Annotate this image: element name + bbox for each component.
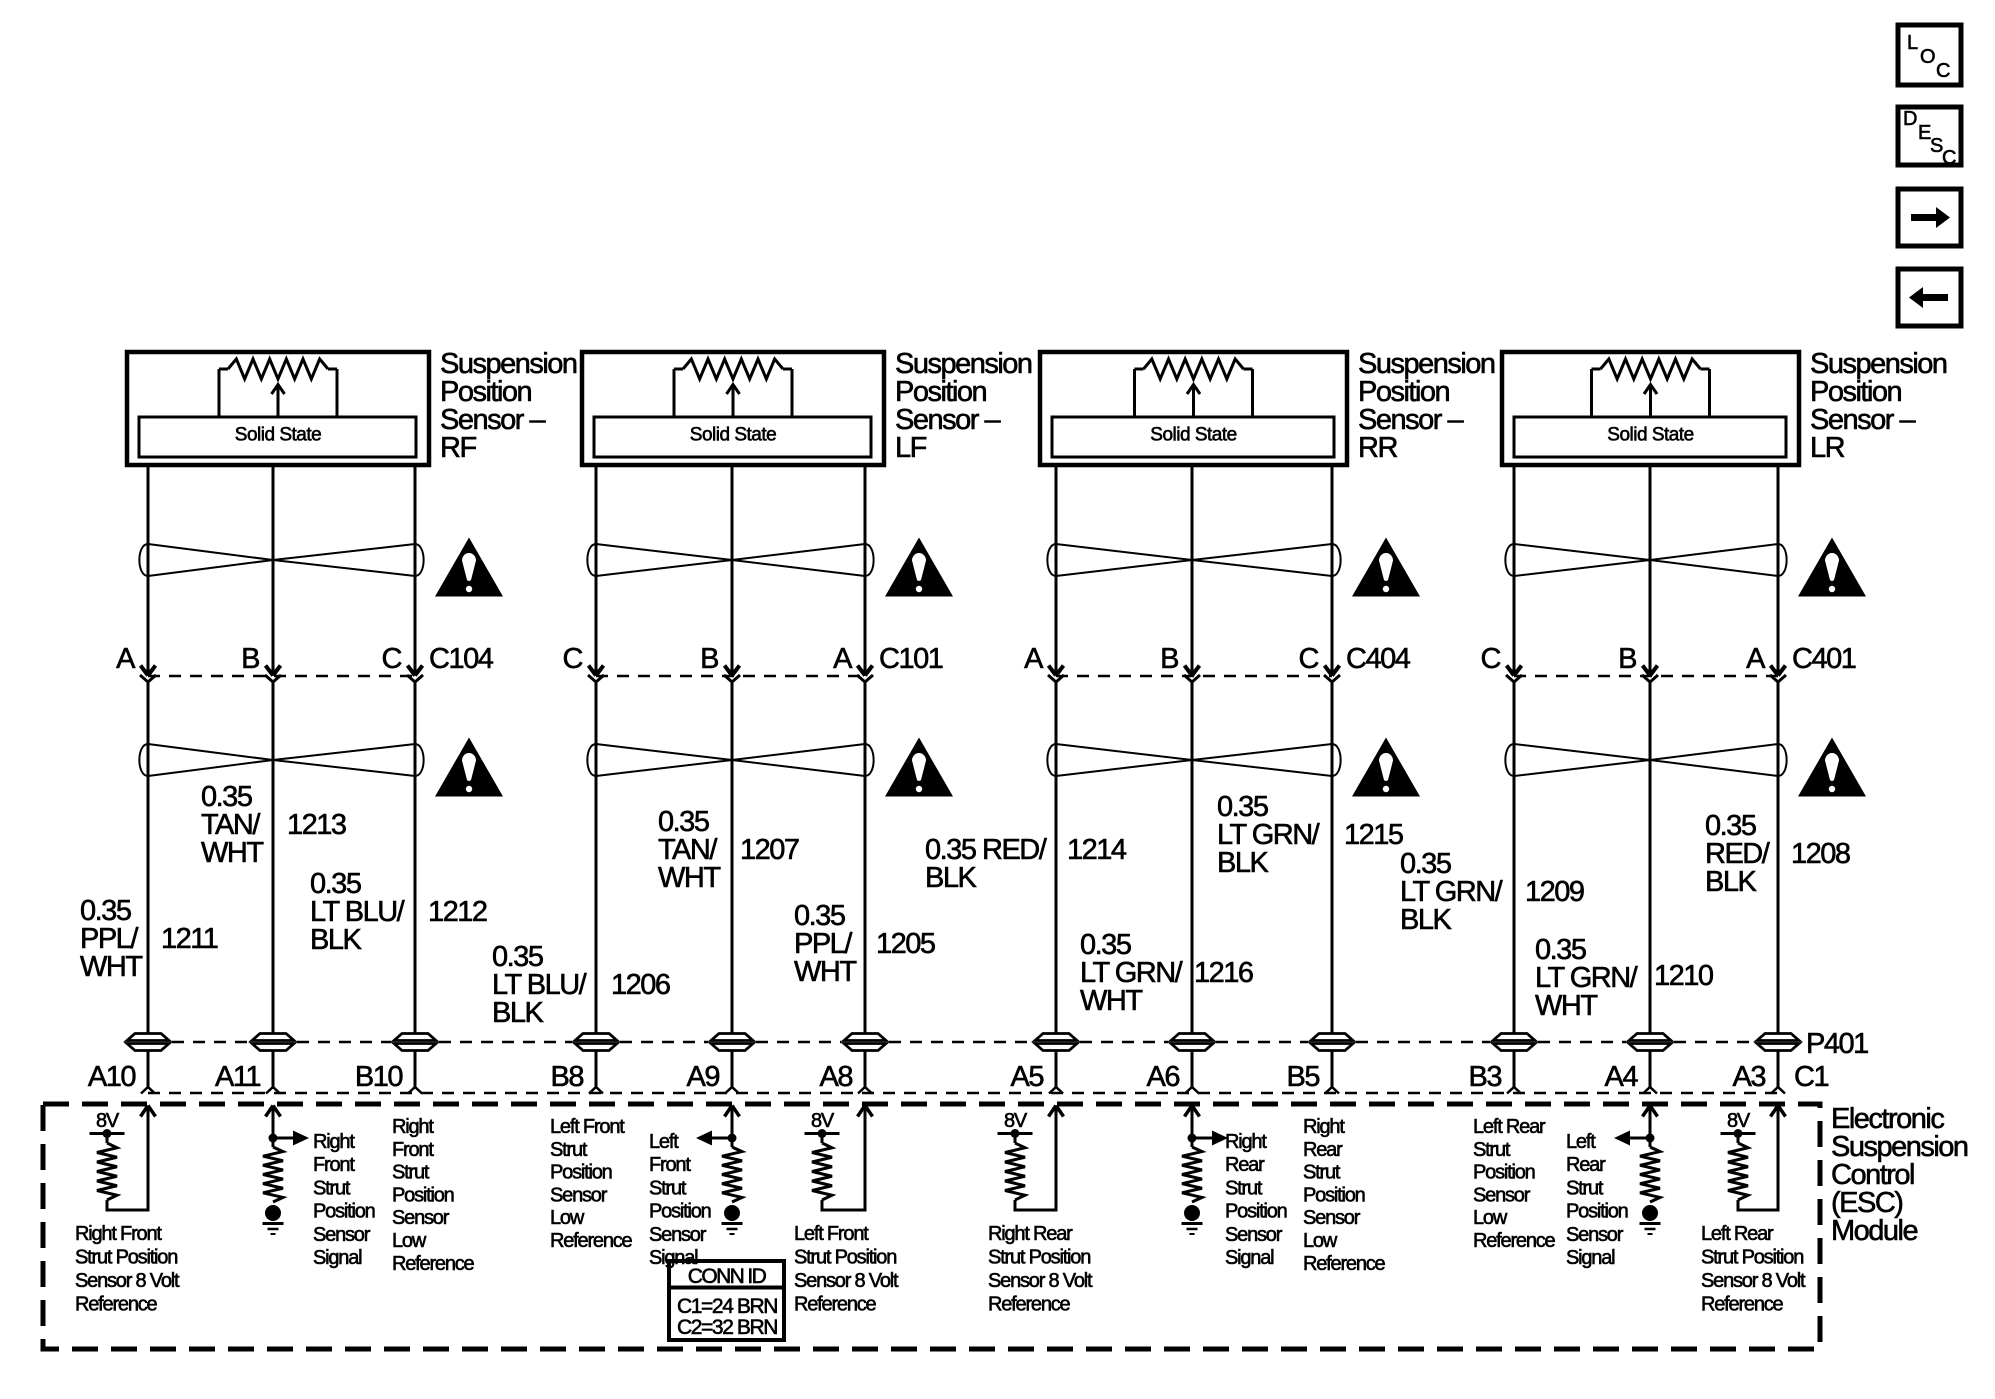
svg-text:Low: Low xyxy=(1473,1207,1508,1229)
svg-text:8V: 8V xyxy=(811,1110,835,1132)
svg-text:1212: 1212 xyxy=(428,896,487,928)
svg-text:BLK: BLK xyxy=(310,924,362,956)
svg-text:A5: A5 xyxy=(1011,1061,1044,1093)
svg-text:Sensor 8 Volt: Sensor 8 Volt xyxy=(1701,1270,1806,1292)
svg-text:O: O xyxy=(1920,46,1935,68)
svg-text:C101: C101 xyxy=(879,643,943,675)
svg-text:Position: Position xyxy=(1303,1184,1365,1206)
svg-text:WHT: WHT xyxy=(80,951,143,983)
svg-text:Sensor: Sensor xyxy=(313,1224,371,1246)
svg-text:B8: B8 xyxy=(551,1061,584,1093)
svg-text:Right: Right xyxy=(1225,1131,1267,1153)
svg-text:Module: Module xyxy=(1831,1215,1917,1247)
svg-text:1208: 1208 xyxy=(1791,838,1850,870)
svg-text:A6: A6 xyxy=(1147,1061,1180,1093)
svg-text:1209: 1209 xyxy=(1525,876,1584,908)
svg-text:BLK: BLK xyxy=(492,997,544,1029)
svg-text:WHT: WHT xyxy=(1080,985,1143,1017)
svg-text:Sensor: Sensor xyxy=(1303,1207,1361,1229)
svg-text:L: L xyxy=(1907,32,1918,54)
svg-text:Strut: Strut xyxy=(1473,1139,1511,1161)
svg-text:Strut: Strut xyxy=(392,1162,430,1184)
svg-text:Low: Low xyxy=(392,1230,427,1252)
svg-text:C: C xyxy=(1299,643,1319,675)
svg-text:Front: Front xyxy=(313,1154,355,1176)
svg-text:Position: Position xyxy=(313,1201,375,1223)
svg-text:P401: P401 xyxy=(1806,1028,1868,1060)
svg-text:LF: LF xyxy=(895,432,927,464)
svg-text:BLK: BLK xyxy=(925,862,977,894)
svg-text:Signal: Signal xyxy=(1566,1247,1615,1269)
svg-text:WHT: WHT xyxy=(1535,990,1598,1022)
svg-text:1214: 1214 xyxy=(1067,834,1127,866)
svg-text:C: C xyxy=(1481,643,1501,675)
svg-text:Solid State: Solid State xyxy=(235,425,321,446)
svg-text:LR: LR xyxy=(1810,432,1845,464)
svg-text:Low: Low xyxy=(1303,1230,1338,1252)
svg-text:Left Rear: Left Rear xyxy=(1701,1223,1774,1245)
svg-text:RF: RF xyxy=(440,432,476,464)
svg-text:Strut Position: Strut Position xyxy=(75,1247,177,1269)
svg-text:1213: 1213 xyxy=(287,809,346,841)
svg-text:C: C xyxy=(382,643,402,675)
svg-text:C2=32 BRN: C2=32 BRN xyxy=(677,1316,777,1339)
svg-text:8V: 8V xyxy=(1727,1110,1751,1132)
svg-text:Left: Left xyxy=(1566,1131,1596,1153)
svg-text:Right Front: Right Front xyxy=(75,1223,162,1245)
svg-text:1207: 1207 xyxy=(740,834,799,866)
svg-text:Left: Left xyxy=(649,1131,679,1153)
svg-text:Strut Position: Strut Position xyxy=(1701,1247,1803,1269)
svg-text:Solid State: Solid State xyxy=(1150,425,1236,446)
svg-text:Sensor: Sensor xyxy=(1566,1224,1624,1246)
svg-text:BLK: BLK xyxy=(1705,866,1757,898)
svg-text:RR: RR xyxy=(1358,432,1397,464)
svg-text:Low: Low xyxy=(550,1207,585,1229)
svg-text:Sensor 8 Volt: Sensor 8 Volt xyxy=(988,1270,1093,1292)
svg-text:Right: Right xyxy=(1303,1116,1345,1138)
svg-text:C: C xyxy=(1936,60,1950,82)
svg-text:Sensor: Sensor xyxy=(649,1224,707,1246)
svg-text:Position: Position xyxy=(392,1184,454,1206)
svg-text:A: A xyxy=(116,643,136,675)
svg-text:Front: Front xyxy=(649,1154,691,1176)
svg-text:1210: 1210 xyxy=(1654,960,1713,992)
svg-text:A11: A11 xyxy=(215,1061,260,1093)
svg-text:1206: 1206 xyxy=(611,969,670,1001)
svg-text:C: C xyxy=(563,643,583,675)
svg-text:Left Rear: Left Rear xyxy=(1473,1116,1546,1138)
svg-text:1211: 1211 xyxy=(161,923,218,955)
svg-text:Strut: Strut xyxy=(1225,1177,1263,1199)
svg-text:Position: Position xyxy=(1473,1162,1535,1184)
svg-text:Strut Position: Strut Position xyxy=(794,1247,896,1269)
svg-text:Reference: Reference xyxy=(392,1253,475,1275)
svg-text:C401: C401 xyxy=(1792,643,1856,675)
svg-text:A: A xyxy=(1024,643,1044,675)
svg-text:Sensor: Sensor xyxy=(1225,1224,1283,1246)
svg-text:Strut: Strut xyxy=(313,1177,351,1199)
svg-text:Solid State: Solid State xyxy=(690,425,776,446)
svg-text:Signal: Signal xyxy=(313,1247,362,1269)
svg-text:Position: Position xyxy=(649,1201,711,1223)
svg-text:Rear: Rear xyxy=(1225,1154,1265,1176)
svg-text:A9: A9 xyxy=(687,1061,720,1093)
svg-text:Rear: Rear xyxy=(1566,1154,1606,1176)
svg-text:Strut: Strut xyxy=(550,1139,588,1161)
svg-text:B: B xyxy=(700,643,718,675)
svg-text:Strut: Strut xyxy=(649,1177,687,1199)
svg-text:1216: 1216 xyxy=(1194,957,1253,989)
svg-text:C404: C404 xyxy=(1346,643,1411,675)
svg-text:Sensor 8 Volt: Sensor 8 Volt xyxy=(75,1270,180,1292)
svg-text:Reference: Reference xyxy=(988,1294,1071,1316)
svg-text:WHT: WHT xyxy=(794,956,857,988)
svg-text:1215: 1215 xyxy=(1344,819,1403,851)
svg-text:C1=24 BRN: C1=24 BRN xyxy=(677,1295,777,1318)
svg-text:CONN ID: CONN ID xyxy=(688,1265,767,1288)
svg-text:Left Front: Left Front xyxy=(794,1223,869,1245)
svg-text:Sensor: Sensor xyxy=(392,1207,450,1229)
svg-text:Strut Position: Strut Position xyxy=(988,1247,1090,1269)
svg-text:Right: Right xyxy=(313,1131,355,1153)
svg-text:1205: 1205 xyxy=(876,928,935,960)
svg-text:B5: B5 xyxy=(1287,1061,1320,1093)
svg-text:WHT: WHT xyxy=(658,862,721,894)
svg-text:Right: Right xyxy=(392,1116,434,1138)
svg-text:Sensor 8 Volt: Sensor 8 Volt xyxy=(794,1270,899,1292)
svg-text:Sensor: Sensor xyxy=(550,1184,608,1206)
svg-text:B3: B3 xyxy=(1469,1061,1502,1093)
svg-text:B: B xyxy=(1160,643,1178,675)
svg-text:Position: Position xyxy=(1225,1201,1287,1223)
svg-text:C104: C104 xyxy=(429,643,494,675)
svg-text:Reference: Reference xyxy=(550,1230,633,1252)
svg-text:Rear: Rear xyxy=(1303,1139,1343,1161)
svg-text:A: A xyxy=(833,643,853,675)
svg-text:A4: A4 xyxy=(1605,1061,1639,1093)
svg-text:Strut: Strut xyxy=(1303,1162,1341,1184)
svg-text:Signal: Signal xyxy=(1225,1247,1274,1269)
svg-text:C: C xyxy=(1942,147,1956,169)
svg-text:BLK: BLK xyxy=(1217,847,1269,879)
svg-text:Right Rear: Right Rear xyxy=(988,1223,1073,1245)
svg-text:Reference: Reference xyxy=(1701,1294,1784,1316)
svg-text:A8: A8 xyxy=(820,1061,853,1093)
svg-text:Front: Front xyxy=(392,1139,434,1161)
svg-text:A: A xyxy=(1746,643,1766,675)
svg-text:BLK: BLK xyxy=(1400,904,1452,936)
svg-text:WHT: WHT xyxy=(201,837,264,869)
svg-text:B: B xyxy=(241,643,259,675)
svg-text:Position: Position xyxy=(550,1162,612,1184)
svg-text:Reference: Reference xyxy=(75,1294,158,1316)
svg-text:A3: A3 xyxy=(1733,1061,1766,1093)
svg-text:D: D xyxy=(1903,108,1917,130)
svg-text:B10: B10 xyxy=(355,1061,402,1093)
svg-text:8V: 8V xyxy=(96,1110,120,1132)
svg-text:8V: 8V xyxy=(1004,1110,1028,1132)
svg-text:Strut: Strut xyxy=(1566,1177,1604,1199)
svg-text:Reference: Reference xyxy=(1473,1230,1556,1252)
svg-text:Reference: Reference xyxy=(1303,1253,1386,1275)
svg-text:Reference: Reference xyxy=(794,1294,877,1316)
svg-text:Sensor: Sensor xyxy=(1473,1184,1531,1206)
svg-text:Solid State: Solid State xyxy=(1607,425,1693,446)
svg-text:Left Front: Left Front xyxy=(550,1116,625,1138)
svg-text:C1: C1 xyxy=(1794,1061,1828,1093)
svg-text:Position: Position xyxy=(1566,1201,1628,1223)
svg-text:B: B xyxy=(1618,643,1636,675)
svg-text:A10: A10 xyxy=(88,1061,135,1093)
